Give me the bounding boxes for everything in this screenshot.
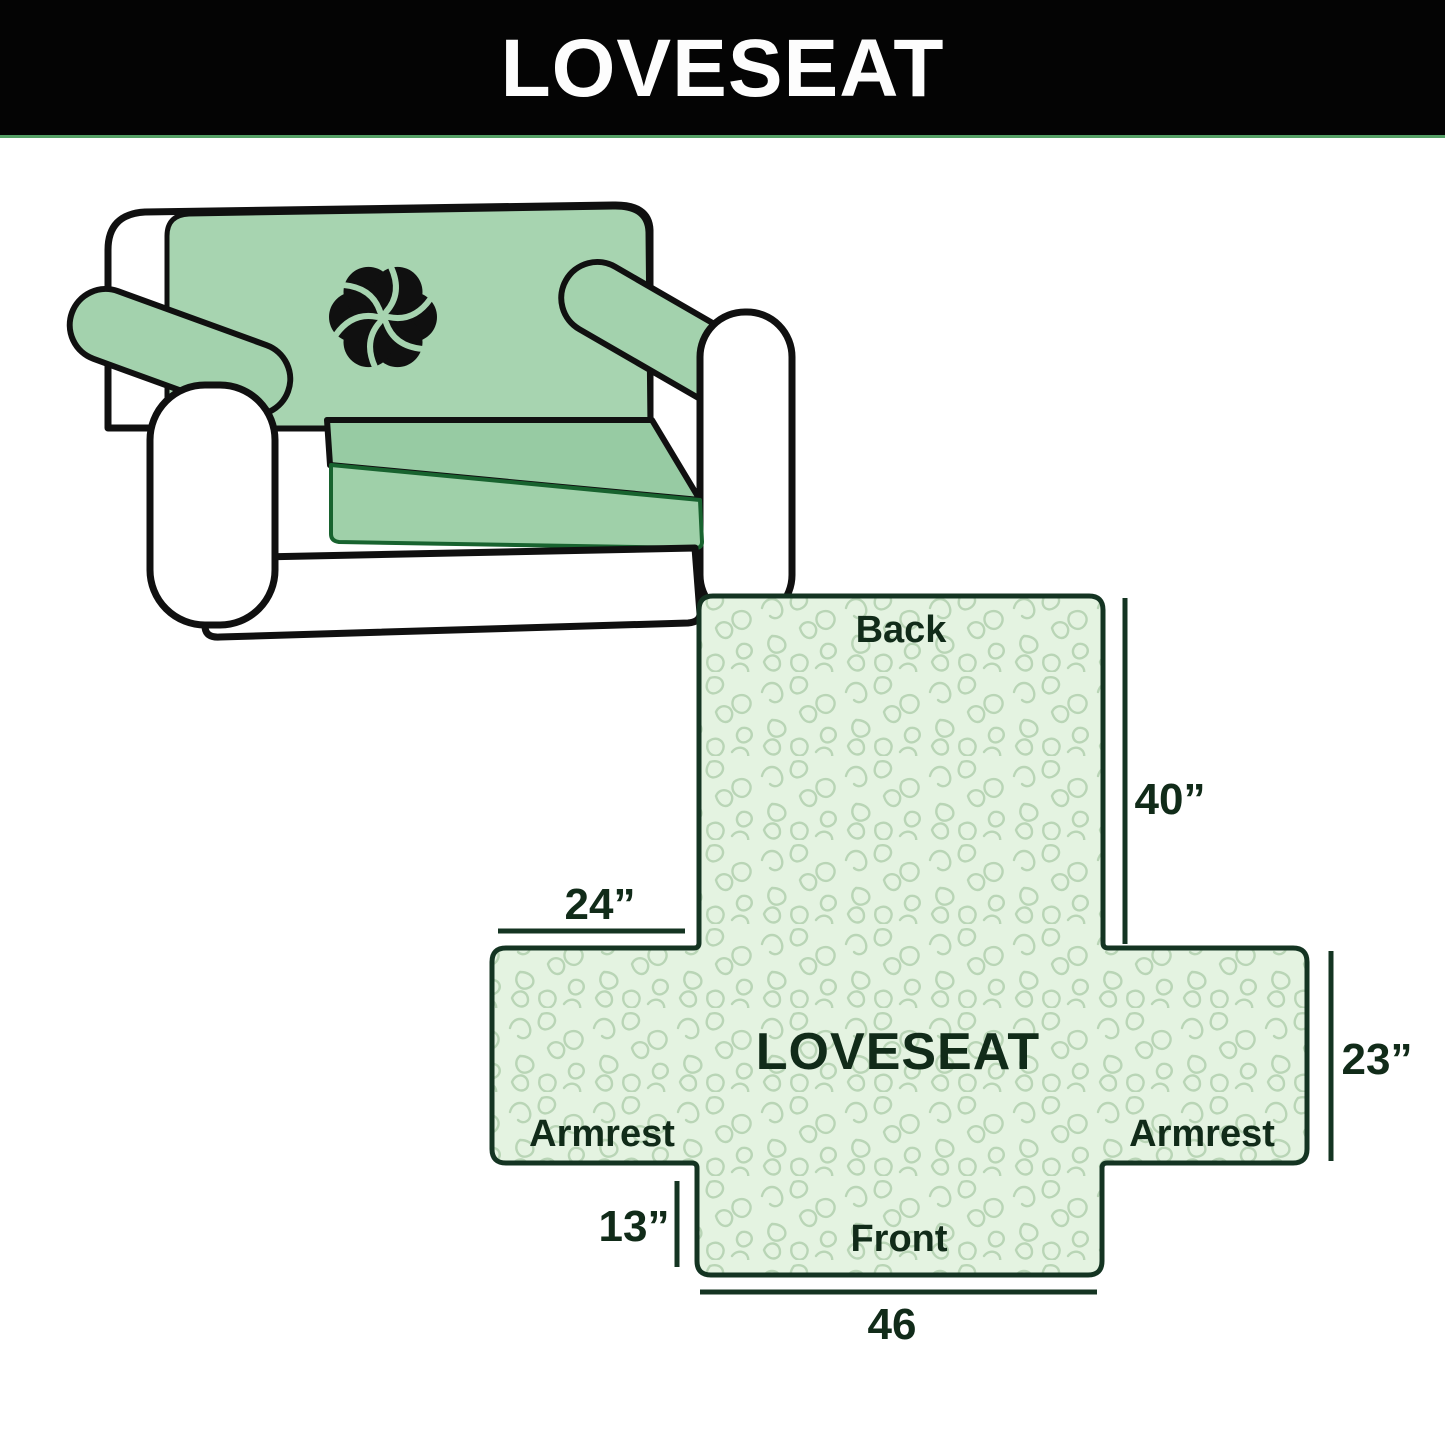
armrest-left-label: Armrest: [529, 1115, 675, 1153]
cover-quilt-pattern: [492, 596, 1307, 1275]
product-size-infographic: LOVESEAT: [0, 0, 1445, 1445]
front-label: Front: [850, 1220, 947, 1258]
dim-back-height: 40”: [1135, 778, 1206, 822]
diagram-product-label: LOVESEAT: [756, 1026, 1040, 1078]
cover-dimension-diagram: [0, 0, 1445, 1445]
armrest-right-label: Armrest: [1129, 1115, 1275, 1153]
dim-front-width: 46: [868, 1303, 917, 1347]
dim-side-height: 23”: [1342, 1038, 1413, 1082]
back-label: Back: [856, 611, 947, 649]
dim-armrest-top-width: 24”: [565, 883, 636, 927]
dim-front-drop: 13”: [599, 1205, 670, 1249]
